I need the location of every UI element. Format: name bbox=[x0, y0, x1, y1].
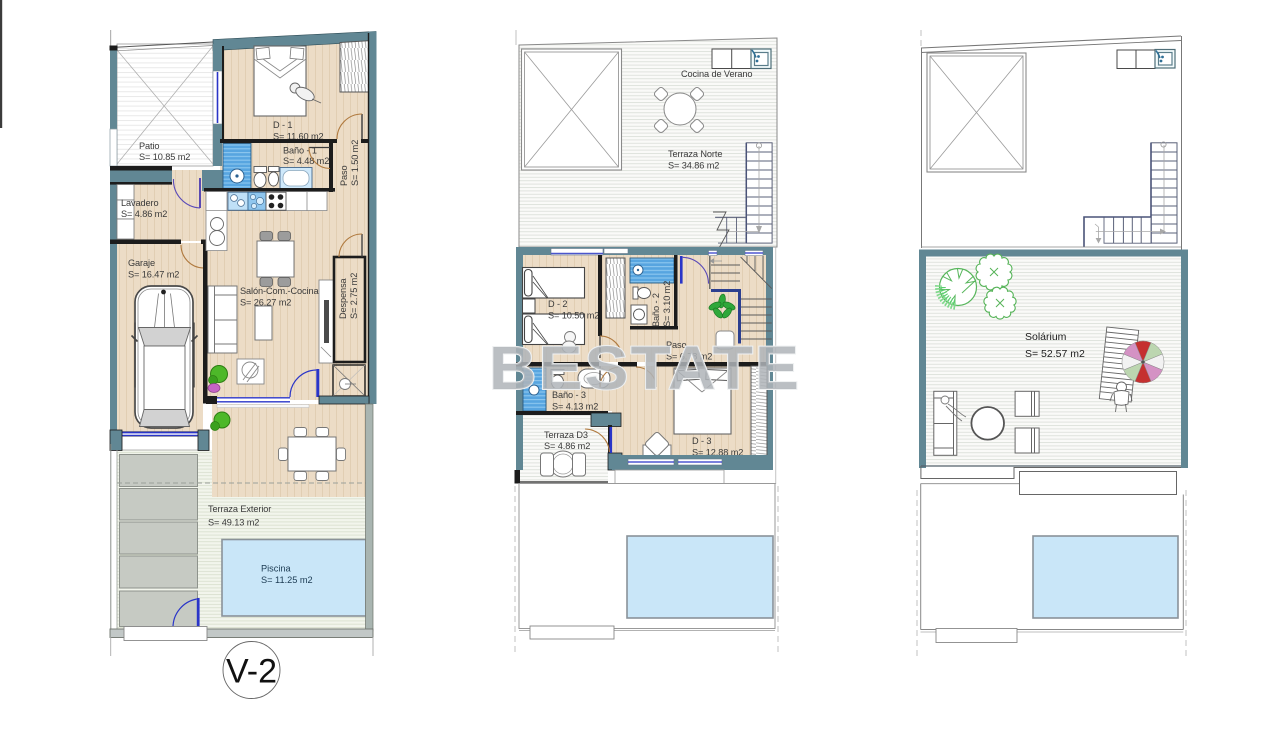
svg-text:S= 4.13 m2: S= 4.13 m2 bbox=[552, 402, 598, 412]
svg-text:S= 34.86 m2: S= 34.86 m2 bbox=[668, 161, 719, 171]
svg-text:S= 10.50 m2: S= 10.50 m2 bbox=[548, 311, 599, 321]
svg-text:S= 4.86 m2: S= 4.86 m2 bbox=[121, 209, 167, 219]
svg-text:S= 49.13 m2: S= 49.13 m2 bbox=[208, 518, 259, 528]
svg-text:Solárium: Solárium bbox=[1025, 331, 1067, 343]
svg-text:Salón-Com.-Cocina: Salón-Com.-Cocina bbox=[240, 286, 319, 296]
svg-text:Garaje: Garaje bbox=[128, 258, 155, 268]
svg-text:S= 11.25 m2: S= 11.25 m2 bbox=[261, 575, 313, 585]
svg-text:D - 3: D - 3 bbox=[692, 436, 711, 446]
svg-text:S= 4.48 m2: S= 4.48 m2 bbox=[283, 156, 329, 166]
svg-text:Paso: Paso bbox=[339, 165, 349, 186]
svg-text:S= 52.57 m2: S= 52.57 m2 bbox=[1025, 348, 1085, 360]
svg-text:S= 10.85 m2: S= 10.85 m2 bbox=[139, 152, 190, 162]
svg-text:Despensa: Despensa bbox=[338, 277, 348, 319]
svg-text:S= 4.86 m2: S= 4.86 m2 bbox=[544, 441, 590, 451]
svg-text:S= 3.10 m2: S= 3.10 m2 bbox=[662, 281, 672, 327]
svg-text:Lavadero: Lavadero bbox=[121, 198, 159, 208]
svg-text:V-2: V-2 bbox=[226, 653, 277, 691]
svg-text:Baño - 2: Baño - 2 bbox=[651, 293, 661, 327]
svg-text:Cocina de Verano: Cocina de Verano bbox=[681, 69, 752, 79]
svg-text:S= 16.47 m2: S= 16.47 m2 bbox=[128, 270, 179, 280]
svg-text:D - 1: D - 1 bbox=[273, 120, 292, 130]
svg-text:D - 2: D - 2 bbox=[548, 299, 567, 309]
svg-text:Piscina: Piscina bbox=[261, 564, 292, 574]
svg-text:BESTATE: BESTATE bbox=[489, 334, 801, 402]
svg-text:Terraza Exterior: Terraza Exterior bbox=[208, 504, 271, 514]
svg-text:Patio: Patio bbox=[139, 141, 159, 151]
svg-text:S= 2.75 m2: S= 2.75 m2 bbox=[349, 273, 359, 319]
svg-text:S= 1.50 m2: S= 1.50 m2 bbox=[350, 140, 360, 186]
svg-text:Terraza Norte: Terraza Norte bbox=[668, 149, 722, 159]
svg-text:Terraza D3: Terraza D3 bbox=[544, 430, 588, 440]
